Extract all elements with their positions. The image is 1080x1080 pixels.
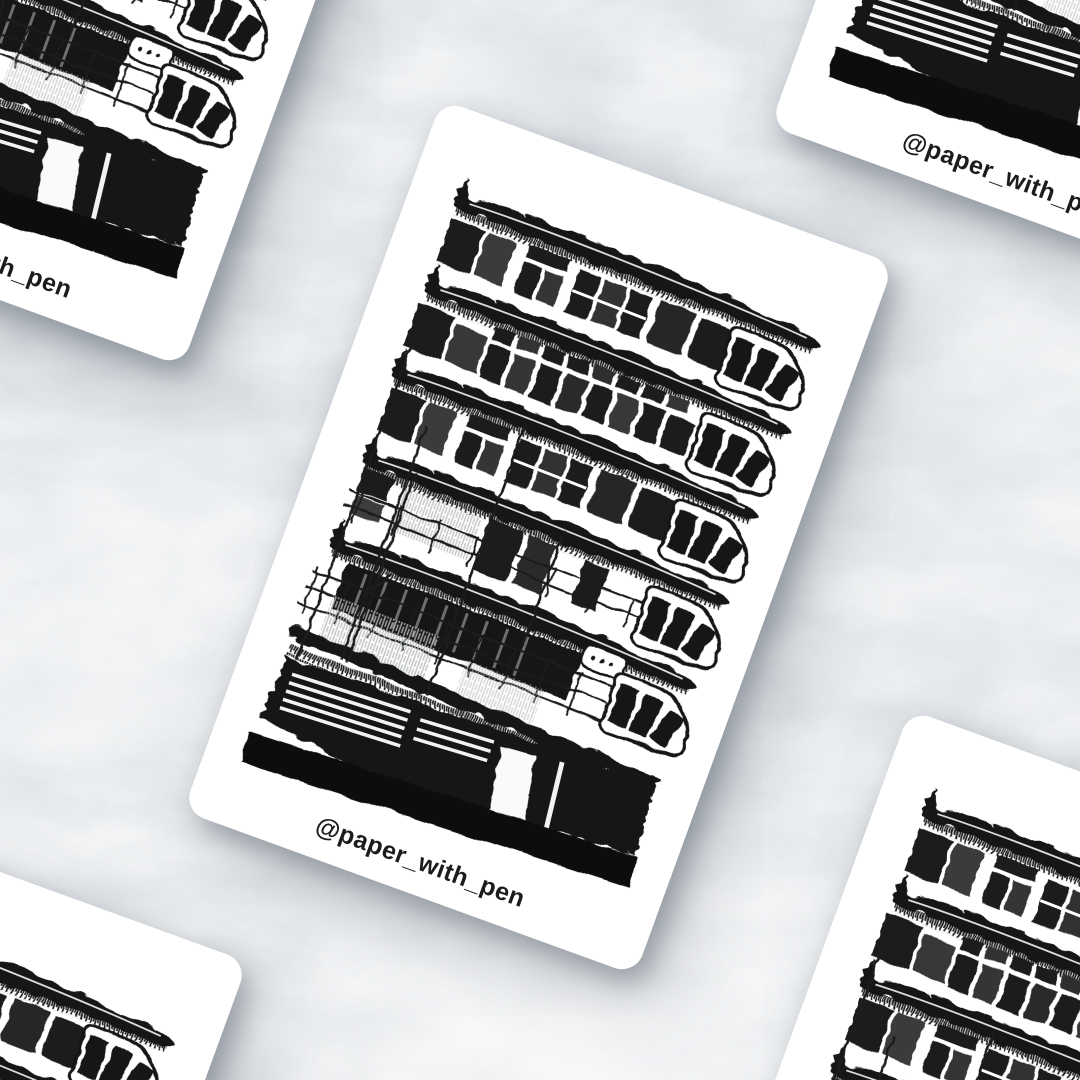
scene: @paper_with_pen @paper_with_pen @paper_w… xyxy=(0,0,1080,1080)
